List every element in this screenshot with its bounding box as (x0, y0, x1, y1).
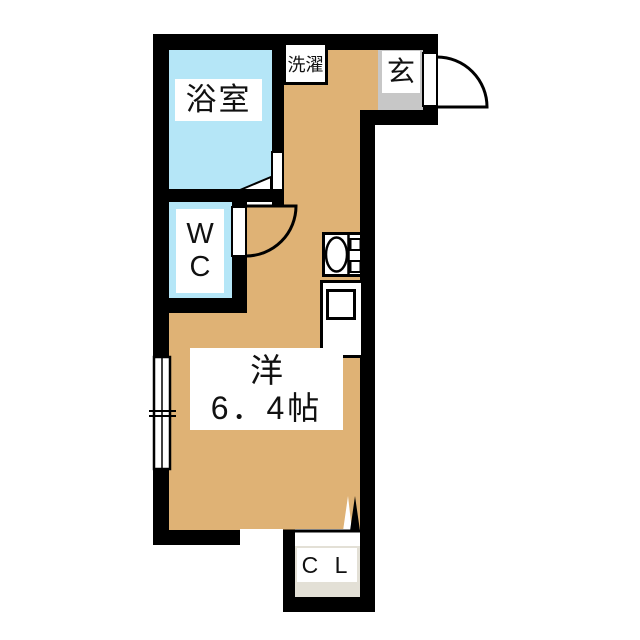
main-room-label: 洋 6．4帖 (190, 348, 343, 430)
entrance-door-leaf (422, 52, 438, 107)
wall-closet-bottom (283, 597, 375, 612)
laundry-label: 洗濯 (288, 51, 324, 77)
wall-left (153, 34, 169, 545)
main-room-name: 洋 (250, 352, 283, 390)
wall-bathroom-bottom (153, 189, 283, 202)
bathroom-label-text: 浴室 (186, 82, 252, 118)
floor-plan: 洗濯 浴室 W C 玄 洋 6．4帖 C L (0, 0, 640, 640)
main-room-size: 6．4帖 (211, 390, 323, 427)
washing-machine-space: 洗濯 (283, 42, 328, 85)
wall-right (360, 110, 375, 612)
entrance-label-text: 玄 (387, 56, 415, 88)
toilet-label-line1: W (186, 218, 213, 251)
toilet-door-leaf (231, 206, 247, 257)
bathroom-door-leaf (271, 151, 284, 191)
wall-toilet-bottom (153, 298, 247, 313)
wall-bottom (153, 530, 240, 545)
toilet-label: W C (176, 209, 224, 293)
kitchen-sink-unit (322, 232, 363, 277)
closet-label-text: C L (302, 552, 353, 578)
entrance-door-arc (437, 57, 487, 107)
closet-label: C L (297, 548, 357, 582)
bottom-wall-opening (240, 529, 283, 546)
stove-top (326, 289, 356, 320)
entrance-label: 玄 (382, 51, 420, 93)
bathroom-label: 浴室 (175, 79, 262, 121)
toilet-label-line2: C (190, 251, 211, 284)
closet-opening (295, 529, 360, 546)
